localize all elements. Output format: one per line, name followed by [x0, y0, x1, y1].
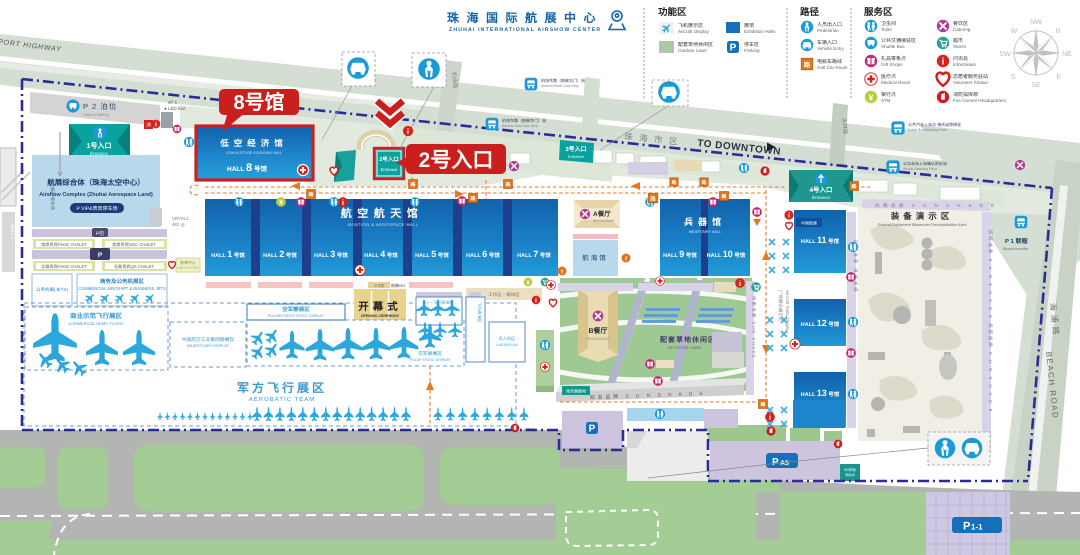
svg-text:SW: SW [999, 51, 1011, 58]
svg-text:A餐厅: A餐厅 [593, 210, 611, 218]
svg-text:Entrance: Entrance [812, 195, 831, 200]
svg-text:中国航展: 中国航展 [801, 221, 817, 226]
svg-text:机场东路（航展东门）站: 机场东路（航展东门）站 [502, 118, 546, 123]
svg-text:珠海国际航展中心: 珠海国际航展中心 [447, 11, 603, 25]
svg-text:停车区: 停车区 [744, 41, 759, 48]
svg-text:Volunteer Station: Volunteer Station [953, 80, 988, 85]
svg-text:消: 消 [146, 122, 151, 129]
svg-text:礼品零售点: 礼品零售点 [881, 55, 906, 62]
svg-text:LOW-ALTITUDE ECONOMY HALL: LOW-ALTITUDE ECONOMY HALL [226, 151, 282, 155]
svg-text:开幕式: 开幕式 [358, 300, 402, 313]
svg-text:Stores: Stores [953, 44, 967, 49]
svg-text:P 1 联程: P 1 联程 [1005, 237, 1028, 245]
svg-text:Toilet: Toilet [881, 27, 892, 32]
svg-text:● LED Exit: ● LED Exit [164, 106, 186, 111]
svg-text:问讯处: 问讯处 [953, 55, 968, 62]
svg-text:AT 1: AT 1 [168, 100, 178, 105]
svg-text:2号入口: 2号入口 [379, 156, 399, 163]
svg-text:P: P [772, 457, 779, 468]
svg-text:志愿者服务驻站: 志愿者服务驻站 [953, 73, 988, 80]
svg-text:无人机区: 无人机区 [499, 336, 516, 341]
svg-text:机场东路（航展北门）站: 机场东路（航展北门）站 [541, 78, 585, 83]
svg-text:路径: 路径 [800, 6, 820, 18]
svg-text:P2临时停车场: P2临时停车场 [50, 182, 55, 211]
svg-text:工作区・媒体区: 工作区・媒体区 [488, 292, 520, 297]
svg-text:Parking: Parking [744, 48, 760, 53]
svg-text:5G体验: 5G体验 [844, 467, 856, 472]
svg-text:服务区: 服务区 [864, 6, 893, 18]
svg-text:AID ◎: AID ◎ [172, 222, 185, 227]
svg-text:SE: SE [1031, 82, 1041, 89]
svg-text:RESTAURANT: RESTAURANT [593, 219, 614, 223]
svg-text:临时入口: 临时入口 [10, 224, 15, 241]
svg-text:Shuttle Bus: Shuttle Bus [881, 44, 905, 49]
svg-text:VIP/XL1: VIP/XL1 [172, 216, 189, 221]
svg-text:2号入口: 2号入口 [419, 149, 494, 172]
svg-text:S: S [1011, 74, 1016, 81]
svg-text:人员出入口: 人员出入口 [817, 21, 842, 28]
svg-text:Pedestrian: Pedestrian [817, 28, 839, 33]
svg-text:Entrance: Entrance [568, 154, 585, 159]
svg-text:风雨连廊 S U N S H A D E: 风雨连廊 S U N S H A D E [875, 203, 998, 208]
svg-text:公共汽车上车点 相关运营接驻: 公共汽车上车点 相关运营接驻 [908, 122, 961, 127]
svg-text:P 2 泊位: P 2 泊位 [83, 102, 117, 111]
svg-text:展馆: 展馆 [744, 22, 754, 29]
svg-text:公共交通接驻区: 公共交通接驻区 [881, 37, 916, 44]
svg-text:Public Bus Boarding Point: Public Bus Boarding Point [908, 128, 947, 132]
svg-text:Entrance: Entrance [381, 167, 398, 172]
svg-text:公交车站上车确认附近站: 公交车站上车确认附近站 [903, 161, 947, 166]
svg-text:功能区: 功能区 [658, 6, 687, 18]
svg-text:8号馆: 8号馆 [233, 91, 284, 114]
svg-text:f: f [625, 257, 627, 263]
svg-text:急救中心: 急救中心 [180, 260, 196, 265]
svg-text:兵器馆: 兵器馆 [684, 217, 726, 227]
svg-text:1-1: 1-1 [971, 523, 983, 532]
svg-text:Airshow Complex (Zhuhai Aerosp: Airshow Complex (Zhuhai Aerospace Land) [39, 192, 153, 198]
svg-text:总裁贵宾QA CHALET: 总裁贵宾QA CHALET [114, 264, 155, 269]
svg-text:餐饮区: 餐饮区 [953, 20, 968, 27]
svg-text:空军静展区: 空军静展区 [418, 350, 442, 357]
svg-text:UAS DISPLAY: UAS DISPLAY [496, 343, 519, 347]
svg-text:Fire Control Headquarters: Fire Control Headquarters [953, 98, 1007, 103]
svg-text:公务机展(JETS): 公务机展(JETS) [36, 287, 68, 292]
svg-text:f: f [561, 270, 563, 276]
svg-text:首席贵宾NGC CHALET: 首席贵宾NGC CHALET [112, 242, 156, 247]
svg-text:商业示范飞行展区: 商业示范飞行展区 [70, 312, 123, 320]
svg-text:风雨连廊 S U N S H A D E 风雨连廊 S: 风雨连廊 S U N S H A D E 风雨连廊 S U N S H A D … [988, 230, 993, 413]
svg-text:A5: A5 [780, 460, 789, 467]
svg-text:消防指挥部: 消防指挥部 [953, 91, 978, 98]
svg-text:飞行表演区: 飞行表演区 [477, 302, 482, 323]
svg-text:PLA AF STATIC DISPLAY: PLA AF STATIC DISPLAY [409, 358, 451, 362]
svg-text:4号入口: 4号入口 [809, 186, 832, 194]
svg-text:海天集散地: 海天集散地 [566, 389, 586, 394]
svg-text:配套草地休闲区: 配套草地休闲区 [660, 335, 716, 344]
svg-text:装备演示区: 装备演示区 [890, 211, 954, 221]
svg-text:Airshow East Gate Stop: Airshow East Gate Stop [502, 124, 538, 128]
svg-text:航海馆: 航海馆 [582, 254, 608, 262]
svg-text:B餐厅: B餐厅 [588, 326, 607, 335]
svg-text:Vehicle Entry: Vehicle Entry [817, 46, 845, 51]
svg-text:E: E [1057, 74, 1062, 81]
svg-text:商务及公务机展区: 商务及公务机展区 [100, 278, 145, 285]
svg-text:ZHUHAI INTERNATIONAL AIRSHOW C: ZHUHAI INTERNATIONAL AIRSHOW CENTER [449, 27, 601, 33]
svg-text:Aircraft Display: Aircraft Display [678, 29, 710, 34]
svg-text:空军静展区: 空军静展区 [282, 306, 310, 313]
svg-text:低空经济馆: 低空经济馆 [219, 138, 288, 148]
svg-text:航展综合体（珠海太空中心）: 航展综合体（珠海太空中心） [47, 178, 145, 187]
svg-text:AID CENTER: AID CENTER [177, 266, 199, 270]
svg-text:中国航空工业集团静展区: 中国航空工业集团静展区 [182, 336, 235, 343]
svg-text:P: P [98, 252, 103, 259]
svg-text:AVIATION & AEROSPACE HALL: AVIATION & AEROSPACE HALL [348, 222, 419, 227]
svg-text:超市: 超市 [953, 37, 963, 44]
svg-text:P: P [963, 521, 970, 533]
svg-text:消防站: 消防站 [524, 428, 535, 432]
svg-text:WEAPONRY HALL: WEAPONRY HALL [689, 230, 722, 234]
svg-text:N: N [1055, 28, 1060, 35]
svg-text:工作区: 工作区 [374, 284, 385, 288]
svg-text:Catering: Catering [953, 27, 971, 32]
svg-text:Outdoor Lawn: Outdoor Lawn [678, 48, 707, 53]
svg-text:军方飞行展区: 军方飞行展区 [237, 381, 327, 395]
svg-text:AEROBATIC TEAM: AEROBATIC TEAM [249, 396, 315, 403]
svg-text:COMMERCIAL AIRCRAFT & BUSINESS: COMMERCIAL AIRCRAFT & BUSINESS JETS [78, 286, 166, 291]
svg-text:车辆入口: 车辆入口 [817, 39, 837, 46]
svg-text:OUTDOOR LAWN: OUTDOOR LAWN [668, 345, 701, 350]
svg-text:W: W [1011, 28, 1018, 35]
svg-text:总裁贵宾PAGE CHALET: 总裁贵宾PAGE CHALET [41, 264, 87, 269]
svg-text:首席贵宾PAGE CHALET: 首席贵宾PAGE CHALET [41, 242, 87, 247]
svg-text:RESTAURANT: RESTAURANT [586, 337, 610, 341]
svg-text:飞机展示区: 飞机展示区 [678, 22, 703, 29]
svg-text:OPENING CEREMONY: OPENING CEREMONY [361, 314, 400, 318]
svg-text:配套草地休闲区: 配套草地休闲区 [678, 41, 713, 48]
svg-text:P VIP&贵宾停车场: P VIP&贵宾停车场 [76, 205, 117, 212]
svg-text:驶站点: 驶站点 [845, 473, 855, 477]
svg-text:Airshow North Gate Stop: Airshow North Gate Stop [541, 84, 579, 88]
svg-text:1号入口: 1号入口 [87, 142, 112, 150]
svg-text:Information: Information [953, 62, 976, 67]
svg-text:P巴: P巴 [96, 231, 104, 237]
svg-text:Aircraft Static Display: Aircraft Static Display [785, 290, 790, 334]
svg-text:航展GO: 航展GO [391, 283, 405, 288]
svg-text:Airport transfer: Airport transfer [1003, 247, 1029, 251]
svg-text:Ground Equipment Maneuver Demo: Ground Equipment Maneuver Demonstration … [878, 222, 968, 227]
svg-text:银行点: 银行点 [881, 91, 896, 98]
svg-text:PLA AIR FORCE STATIC DISPLAY: PLA AIR FORCE STATIC DISPLAY [268, 314, 325, 318]
svg-text:Gift Shops: Gift Shops [881, 62, 903, 67]
svg-text:航空航天馆: 航空航天馆 [341, 207, 424, 220]
svg-text:Medical Room: Medical Room [881, 80, 911, 85]
svg-text:Shuttle Boarding Point: Shuttle Boarding Point [903, 167, 937, 171]
svg-text:卫生间: 卫生间 [881, 20, 896, 27]
svg-text:COMMERCIAL DEMO FLIGHT: COMMERCIAL DEMO FLIGHT [68, 321, 124, 326]
svg-text:Golf Car Route: Golf Car Route [817, 65, 848, 70]
svg-text:MAJESTUARY DISPLAY: MAJESTUARY DISPLAY [187, 344, 230, 348]
svg-text:Exhibition Halls: Exhibition Halls [744, 29, 776, 34]
svg-text:风雨连廊 SUN SHADE: 风雨连廊 SUN SHADE [752, 296, 757, 359]
svg-text:3号入口: 3号入口 [565, 145, 586, 153]
svg-text:NE: NE [1062, 51, 1072, 58]
svg-text:医疗点: 医疗点 [881, 73, 896, 80]
svg-text:ATM: ATM [881, 98, 891, 103]
svg-text:电瓶车路线: 电瓶车路线 [817, 58, 842, 65]
svg-text:NW: NW [1030, 19, 1042, 26]
svg-text:Visitor Parking: Visitor Parking [83, 112, 109, 117]
svg-text:八一飞行表演队: 八一飞行表演队 [424, 300, 454, 305]
